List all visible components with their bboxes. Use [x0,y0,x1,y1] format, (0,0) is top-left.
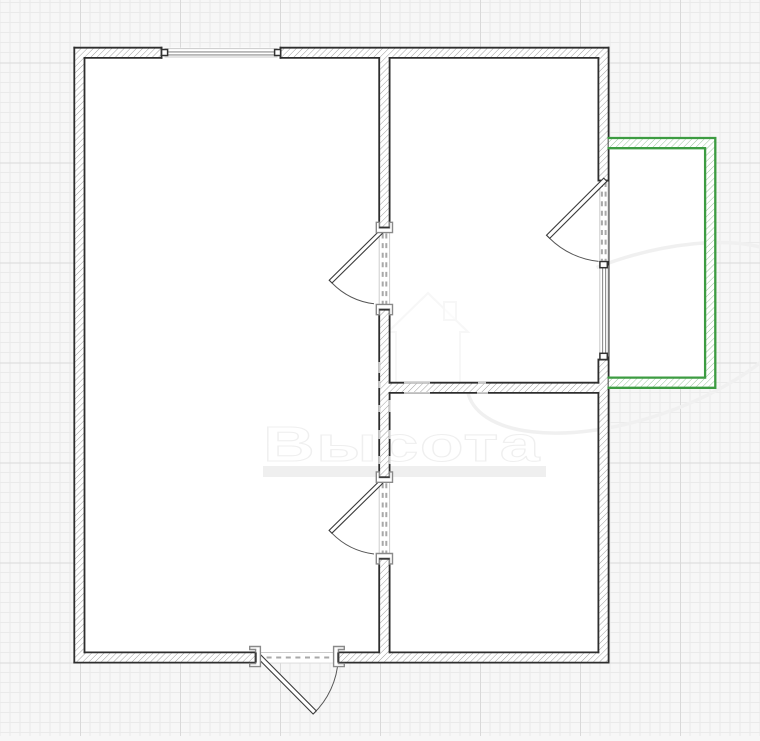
svg-text:Высота: Высота [263,416,541,471]
